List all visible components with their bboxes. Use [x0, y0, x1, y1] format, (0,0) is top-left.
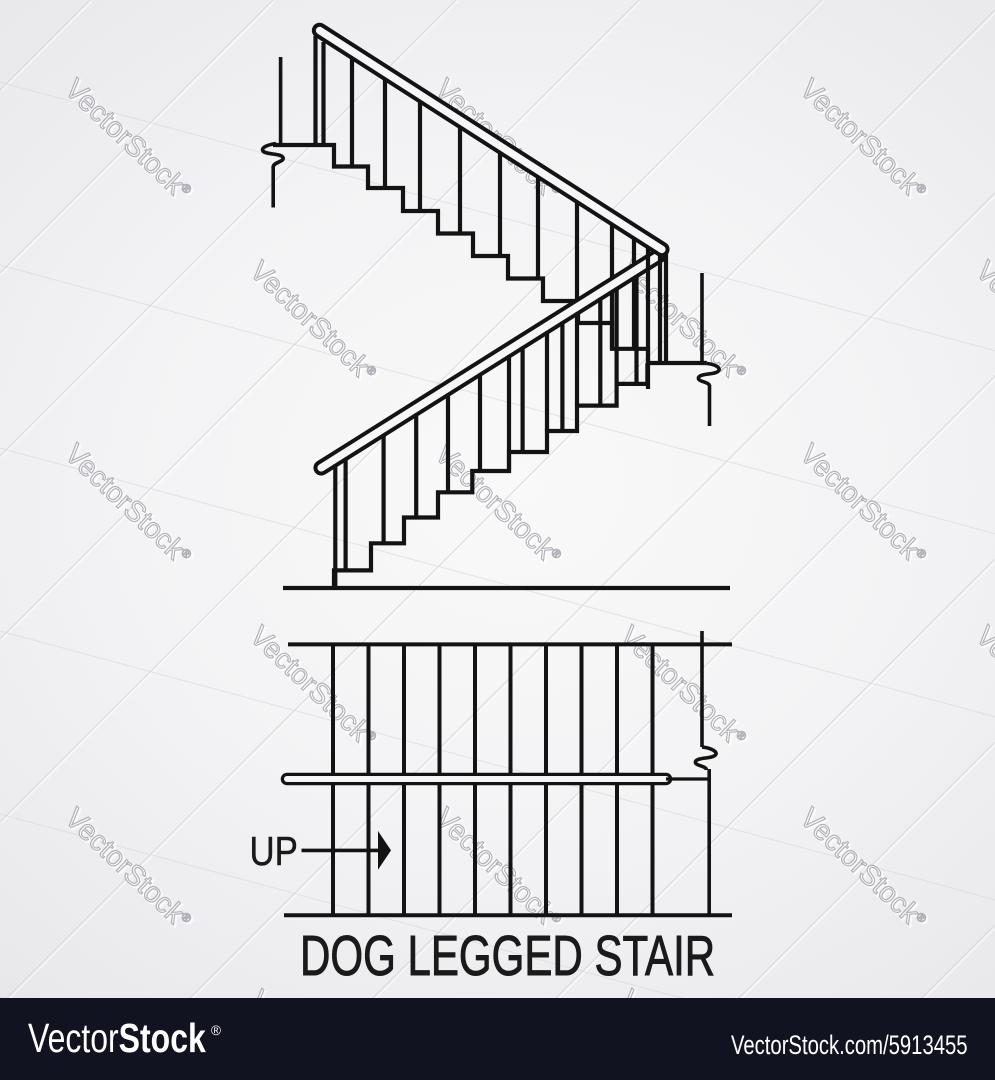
svg-text:VectorStock®: VectorStock®	[969, 255, 995, 389]
svg-text:VectorStock®: VectorStock®	[58, 802, 197, 936]
svg-text:DOG LEGGED STAIR: DOG LEGGED STAIR	[300, 924, 715, 988]
svg-text:VectorStock®: VectorStock®	[969, 620, 995, 754]
svg-text:VectorStock®: VectorStock®	[243, 620, 382, 754]
svg-text:VectorStock®: VectorStock®	[793, 438, 932, 572]
svg-text:VectorStock.com/5913455: VectorStock.com/5913455	[731, 1030, 968, 1059]
svg-text:VectorStock®: VectorStock®	[243, 255, 382, 389]
svg-text:VectorStock: VectorStock	[28, 1015, 206, 1060]
svg-text:VectorStock®: VectorStock®	[793, 802, 932, 936]
svg-text:VectorStock®: VectorStock®	[58, 73, 197, 207]
svg-text:UP: UP	[250, 829, 298, 874]
svg-text:®: ®	[211, 1023, 221, 1038]
svg-text:VectorStock®: VectorStock®	[58, 438, 197, 572]
